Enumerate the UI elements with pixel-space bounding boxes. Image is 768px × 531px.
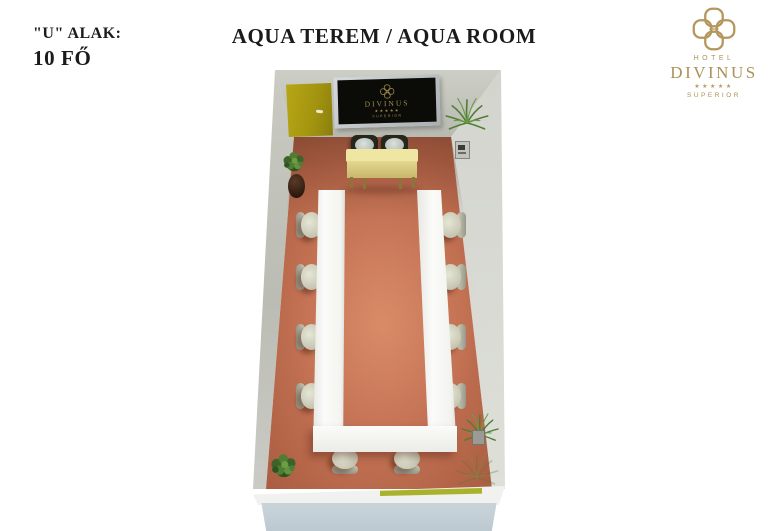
- page-title: AQUA TEREM / AQUA ROOM: [120, 24, 648, 49]
- screen-brand-text: DIVINUS: [365, 99, 410, 108]
- logo-tier-text: SUPERIOR: [658, 93, 768, 100]
- screen-knot-icon: [379, 84, 394, 99]
- chair: [392, 448, 422, 476]
- table-leg: [363, 178, 366, 189]
- chair: [330, 448, 360, 476]
- u-table-bottom: [313, 426, 457, 452]
- screen-stars: ★★★★★: [374, 109, 400, 114]
- room-layout-info: "U" ALAK: 10 FŐ: [33, 25, 122, 71]
- hotel-divinus-logo: HOTEL DIVINUS ★★★★★ SUPERIOR: [658, 6, 768, 100]
- plant-pot: [472, 430, 485, 445]
- screen-tier-text: SUPERIOR: [372, 114, 402, 118]
- plant-bottom-left: [266, 446, 302, 486]
- head-table-front: [347, 161, 417, 178]
- plant-top-right: [444, 90, 490, 142]
- head-table-shadow: [343, 186, 421, 194]
- logo-name-text: DIVINUS: [658, 64, 768, 81]
- front-wall-face: [259, 503, 499, 531]
- divinus-knot-icon: [691, 6, 737, 52]
- chair: [440, 210, 468, 240]
- plant-shadow-bottom-right: [454, 448, 500, 494]
- control-panel-slot: [458, 152, 466, 154]
- screen-display: DIVINUS ★★★★★ SUPERIOR: [337, 78, 436, 125]
- table-leg: [350, 177, 353, 188]
- plant-pot: [288, 174, 305, 198]
- table-leg: [412, 177, 415, 188]
- wall-control-panel: [455, 141, 470, 159]
- u-table-left-leg: [313, 190, 345, 452]
- table-leg: [399, 178, 402, 189]
- layout-shape-label: "U" ALAK:: [33, 25, 122, 43]
- door: [286, 83, 333, 137]
- logo-hotel-text: HOTEL: [658, 55, 768, 62]
- capacity-label: 10 FŐ: [33, 46, 122, 71]
- logo-stars: ★★★★★: [658, 84, 768, 90]
- control-panel-display: [458, 145, 465, 150]
- presentation-screen: DIVINUS ★★★★★ SUPERIOR: [333, 75, 440, 129]
